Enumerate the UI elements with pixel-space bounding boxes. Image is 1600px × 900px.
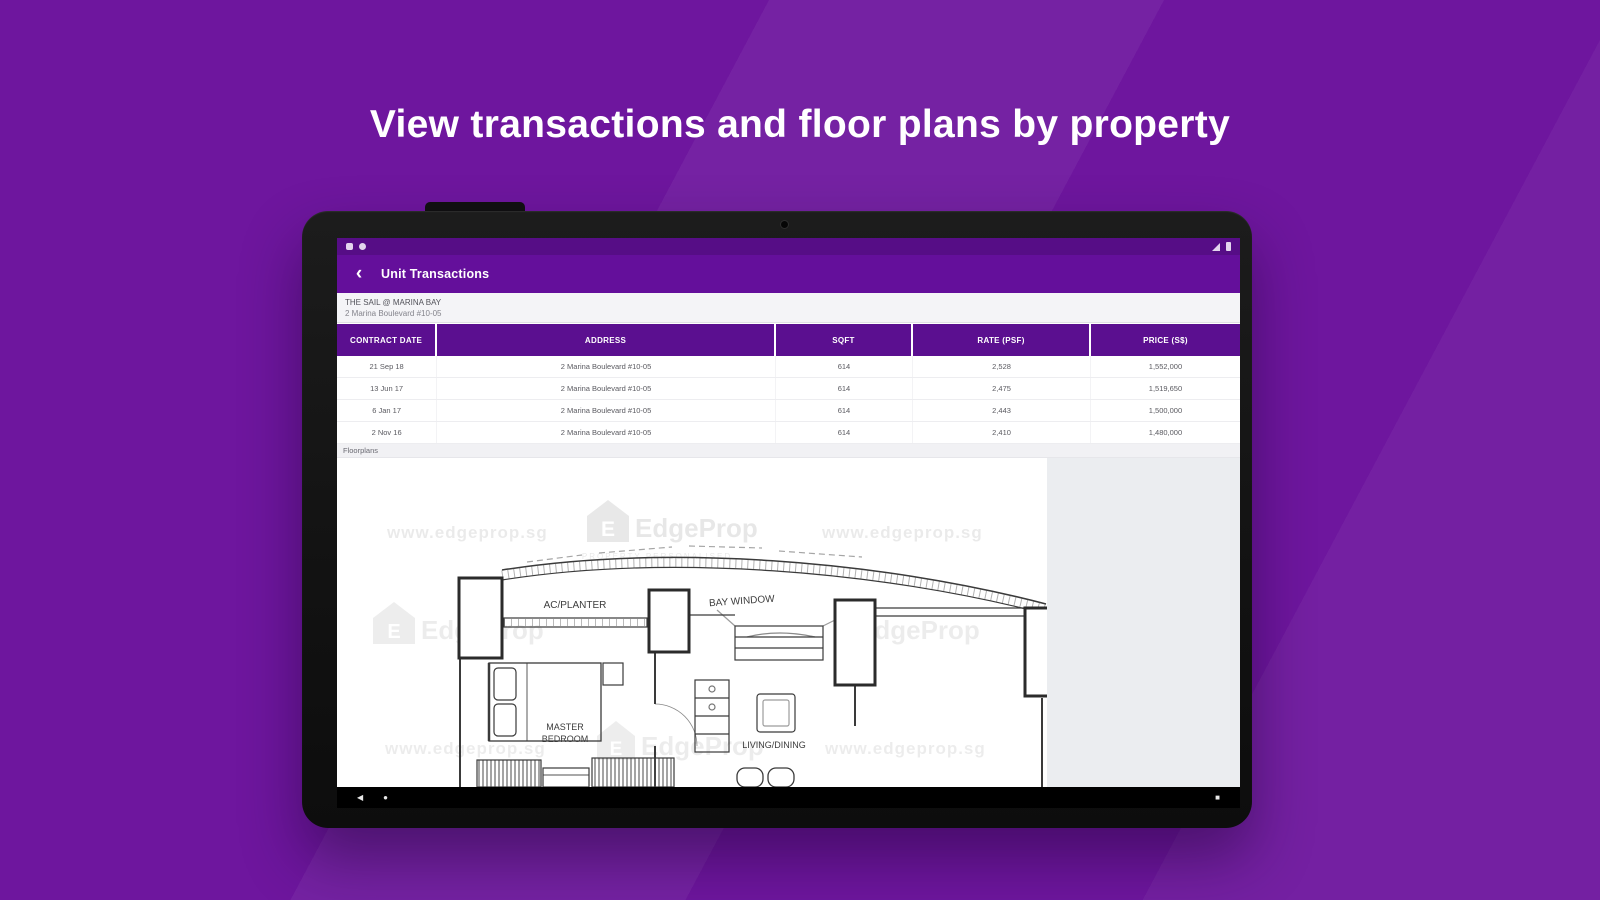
- cell-contract-date: 13 Jun 17: [337, 378, 437, 399]
- app-bar: ‹ Unit Transactions: [337, 255, 1240, 293]
- table-header-row: CONTRACT DATE ADDRESS SQFT RATE (PSF) PR…: [337, 323, 1240, 356]
- cell-contract-date: 2 Nov 16: [337, 422, 437, 443]
- table-body: 21 Sep 18 2 Marina Boulevard #10-05 614 …: [337, 356, 1240, 444]
- label-master-bedroom: BEDROOM: [542, 734, 589, 744]
- nav-recents-button[interactable]: ■: [1215, 793, 1220, 802]
- signal-icon: [1212, 243, 1220, 251]
- cell-contract-date: 21 Sep 18: [337, 356, 437, 377]
- page-title: Unit Transactions: [381, 267, 489, 281]
- property-address: 2 Marina Boulevard #10-05: [345, 308, 1240, 319]
- floorplan-area: www.edgeprop.sg www.edgeprop.sg E EdgePr…: [337, 458, 1240, 787]
- cell-contract-date: 6 Jan 17: [337, 400, 437, 421]
- column-header-contract-date: CONTRACT DATE: [337, 324, 437, 356]
- back-button[interactable]: ‹: [337, 256, 381, 292]
- property-info-bar: THE SAIL @ MARINA BAY 2 Marina Boulevard…: [337, 293, 1240, 323]
- label-bay-window: BAY WINDOW: [709, 594, 776, 610]
- table-row[interactable]: 13 Jun 17 2 Marina Boulevard #10-05 614 …: [337, 378, 1240, 400]
- cell-rate: 2,475: [913, 378, 1091, 399]
- column-header-rate: RATE (PSF): [913, 324, 1091, 356]
- cell-address: 2 Marina Boulevard #10-05: [437, 378, 776, 399]
- label-ac-planter: AC/PLANTER: [544, 600, 607, 611]
- tablet-device: ‹ Unit Transactions THE SAIL @ MARINA BA…: [302, 211, 1252, 828]
- status-bar: [337, 238, 1240, 255]
- cell-price: 1,480,000: [1091, 422, 1240, 443]
- floorplan-empty-area: [1047, 458, 1240, 787]
- edgeprop-house-initial: E: [387, 621, 400, 643]
- nav-home-button[interactable]: ●: [383, 793, 388, 802]
- floorplan-drawing: www.edgeprop.sg www.edgeprop.sg E EdgePr…: [337, 458, 1047, 787]
- floorplan-image[interactable]: www.edgeprop.sg www.edgeprop.sg E EdgePr…: [337, 458, 1047, 787]
- floorplans-section-label: Floorplans: [337, 444, 1240, 458]
- cell-sqft: 614: [776, 356, 913, 377]
- table-row[interactable]: 21 Sep 18 2 Marina Boulevard #10-05 614 …: [337, 356, 1240, 378]
- cell-rate: 2,443: [913, 400, 1091, 421]
- watermark-brand: EdgeProp: [635, 513, 758, 543]
- table-row[interactable]: 2 Nov 16 2 Marina Boulevard #10-05 614 2…: [337, 422, 1240, 444]
- watermark-url: www.edgeprop.sg: [824, 739, 986, 758]
- cell-sqft: 614: [776, 378, 913, 399]
- battery-icon: [1226, 242, 1231, 251]
- edgeprop-house-initial: E: [601, 518, 615, 541]
- android-nav-bar: ◀ ● ■: [337, 787, 1240, 808]
- watermark-url: www.edgeprop.sg: [821, 523, 983, 542]
- column-header-price: PRICE (S$): [1091, 324, 1240, 356]
- cell-price: 1,500,000: [1091, 400, 1240, 421]
- front-camera-icon: [780, 220, 789, 229]
- table-row[interactable]: 6 Jan 17 2 Marina Boulevard #10-05 614 2…: [337, 400, 1240, 422]
- cell-rate: 2,528: [913, 356, 1091, 377]
- label-living-dining: LIVING/DINING: [742, 740, 806, 750]
- label-master-bedroom: MASTER: [546, 722, 584, 732]
- tablet-screen: ‹ Unit Transactions THE SAIL @ MARINA BA…: [337, 238, 1240, 808]
- cell-address: 2 Marina Boulevard #10-05: [437, 422, 776, 443]
- promo-background: View transactions and floor plans by pro…: [0, 0, 1600, 900]
- cell-address: 2 Marina Boulevard #10-05: [437, 356, 776, 377]
- promo-headline: View transactions and floor plans by pro…: [0, 103, 1600, 147]
- cell-price: 1,519,650: [1091, 378, 1240, 399]
- cell-sqft: 614: [776, 400, 913, 421]
- column-header-address: ADDRESS: [437, 324, 776, 356]
- column-header-sqft: SQFT: [776, 324, 913, 356]
- cell-rate: 2,410: [913, 422, 1091, 443]
- nav-back-button[interactable]: ◀: [357, 793, 363, 802]
- notification-icon: [346, 243, 353, 250]
- edgeprop-house-initial: E: [610, 739, 623, 760]
- property-name: THE SAIL @ MARINA BAY: [345, 297, 1240, 308]
- cell-sqft: 614: [776, 422, 913, 443]
- cell-price: 1,552,000: [1091, 356, 1240, 377]
- cell-address: 2 Marina Boulevard #10-05: [437, 400, 776, 421]
- watermark-url: www.edgeprop.sg: [386, 523, 548, 542]
- sync-icon: [359, 243, 366, 250]
- watermark-url: www.edgeprop.sg: [384, 739, 546, 758]
